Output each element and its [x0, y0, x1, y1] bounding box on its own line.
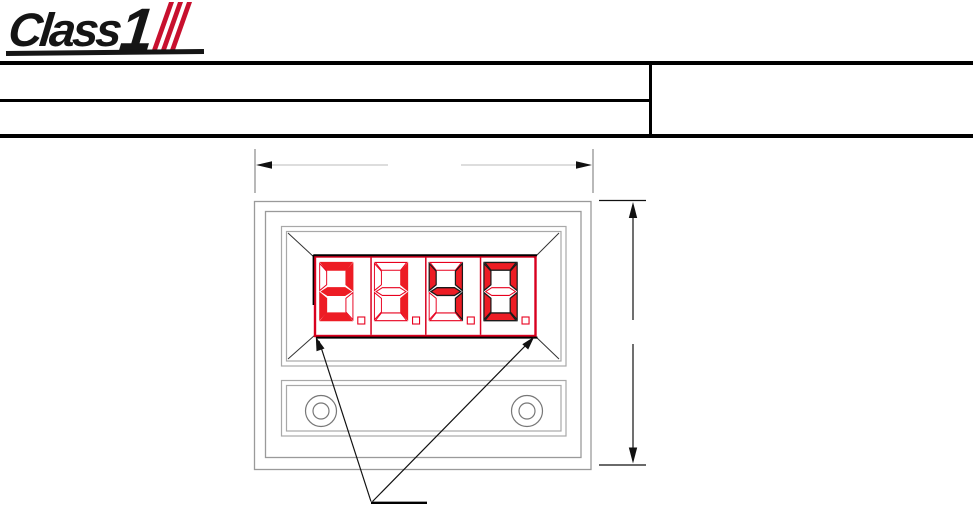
- decimal-point-unlit: [358, 317, 365, 324]
- recess-bevel-bottom-right: [534, 335, 559, 359]
- seven-segment-display: [320, 258, 529, 335]
- recess-bevel-top-right: [534, 233, 559, 258]
- seven-segment-digit: [320, 262, 353, 320]
- segment-g-unlit: [376, 288, 406, 296]
- width-dimension: [255, 149, 593, 193]
- recess-bevel-bottom-left: [288, 335, 315, 359]
- seven-segment-digit: [429, 262, 462, 320]
- segment-g-lit: [431, 288, 461, 296]
- arrow-right-icon: [576, 161, 592, 169]
- mounting-screw-left-inner: [313, 403, 329, 419]
- decimal-point-unlit: [522, 317, 529, 324]
- height-dimension: [599, 201, 646, 466]
- decimal-point-unlit: [467, 317, 474, 324]
- arrow-down-icon: [629, 448, 637, 464]
- segment-g-unlit: [486, 288, 516, 296]
- arrow-left-icon: [256, 161, 272, 169]
- mounting-screw-left-outer: [306, 396, 337, 427]
- meter-drawing: [0, 0, 973, 505]
- leader-line-left: [319, 341, 371, 502]
- segment-g-lit: [321, 288, 351, 296]
- leader-line-right: [373, 341, 531, 502]
- mounting-screw-right-inner: [519, 403, 535, 419]
- recess-bevel-top-left: [288, 233, 315, 258]
- decimal-point-unlit: [413, 317, 420, 324]
- meter-inner-frame: [266, 212, 582, 458]
- lower-recess-outer: [282, 381, 567, 437]
- meter-body: [255, 202, 592, 470]
- arrow-up-icon: [629, 202, 637, 218]
- leader-arrow-left-icon: [316, 337, 325, 352]
- document-page: Class1: [0, 0, 973, 505]
- seven-segment-digit: [484, 262, 517, 320]
- display-recess-inner: [287, 232, 562, 362]
- mounting-screw-right-outer: [512, 396, 543, 427]
- seven-segment-digit: [374, 262, 407, 320]
